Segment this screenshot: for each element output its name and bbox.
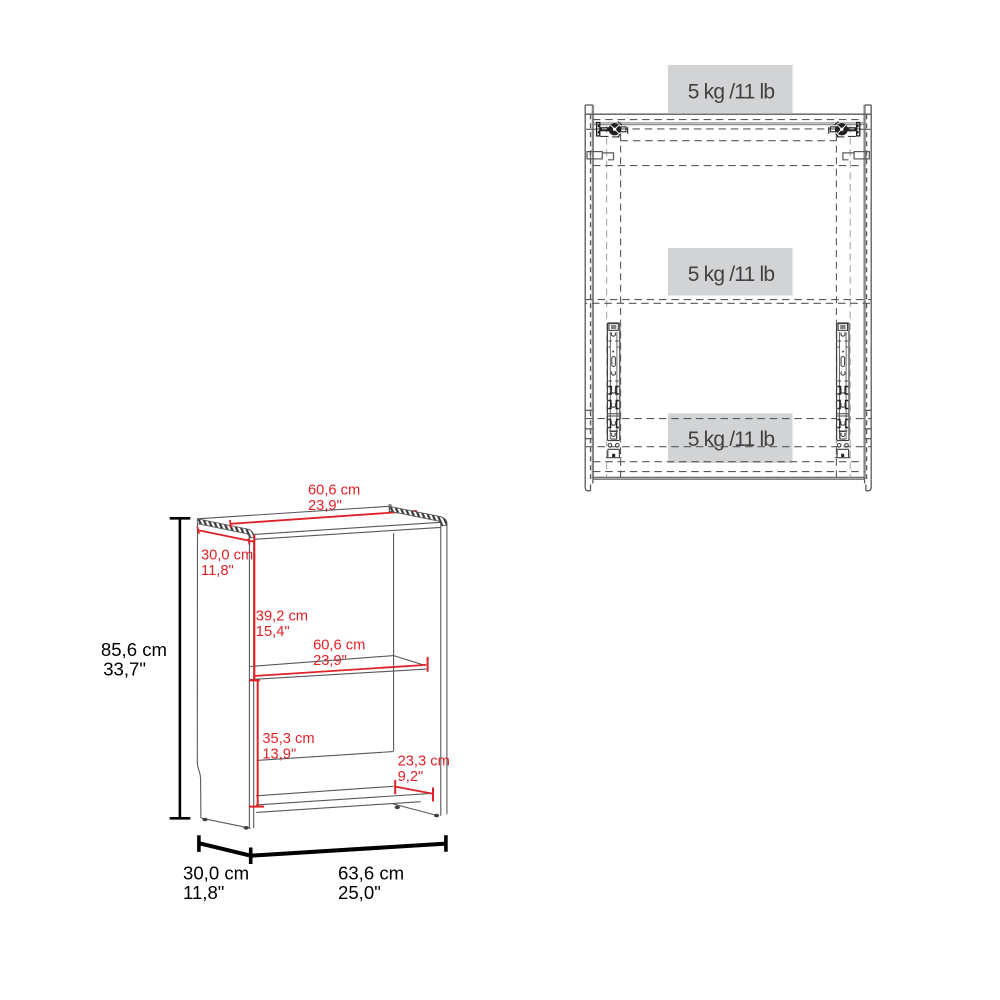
- svg-text:25,0": 25,0": [338, 882, 381, 903]
- svg-text:39,2 cm: 39,2 cm: [256, 608, 308, 624]
- svg-text:30,0 cm: 30,0 cm: [201, 548, 253, 564]
- svg-text:35,3 cm: 35,3 cm: [262, 731, 314, 747]
- svg-text:15,4": 15,4": [256, 624, 290, 640]
- svg-text:63,6 cm: 63,6 cm: [338, 863, 404, 884]
- svg-text:9,2": 9,2": [398, 769, 424, 785]
- svg-text:5 kg /11 lb: 5 kg /11 lb: [688, 428, 775, 451]
- svg-text:13,9": 13,9": [262, 746, 296, 762]
- svg-text:60,6 cm: 60,6 cm: [313, 638, 365, 654]
- svg-text:33,7": 33,7": [103, 659, 146, 680]
- svg-text:23,9": 23,9": [313, 653, 347, 669]
- svg-text:85,6 cm: 85,6 cm: [101, 639, 167, 660]
- svg-text:5 kg /11 lb: 5 kg /11 lb: [688, 263, 775, 286]
- svg-text:23,3 cm: 23,3 cm: [398, 754, 450, 770]
- svg-text:60,6 cm: 60,6 cm: [308, 483, 360, 499]
- svg-text:5 kg /11 lb: 5 kg /11 lb: [688, 80, 775, 103]
- svg-text:11,8": 11,8": [201, 563, 234, 579]
- svg-text:30,0 cm: 30,0 cm: [183, 863, 249, 884]
- svg-text:11,8": 11,8": [183, 882, 224, 903]
- svg-text:23,9": 23,9": [308, 498, 342, 514]
